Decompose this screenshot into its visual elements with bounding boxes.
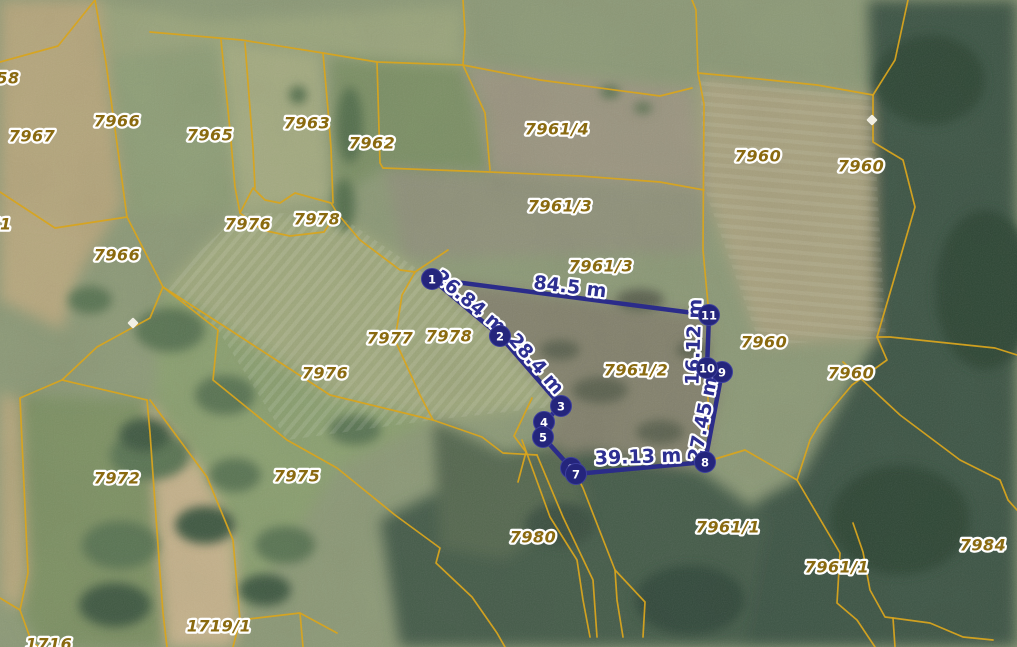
parcel-number-label: 71 — [0, 215, 12, 234]
parcel-number-label: 7961/2 — [604, 361, 669, 380]
parcel-number-label: 7960 — [741, 333, 788, 352]
parcel-number-label: 1716 — [26, 635, 73, 647]
parcel-number-label: 7966 — [94, 112, 141, 131]
parcel-number-label: 7976 — [225, 215, 272, 234]
aerial-cadastral-map: 58796779667965796379627961/4796079607179… — [0, 0, 1017, 647]
parcel-number-label: 7984 — [960, 536, 1007, 555]
measurement-vertex[interactable]: 5 — [533, 427, 554, 448]
measurement-vertex[interactable]: 7 — [566, 464, 587, 485]
parcel-number-label: 7980 — [510, 528, 557, 547]
measurement-vertex[interactable]: 8 — [695, 452, 716, 473]
measurement-distance-label: 39.13 m — [594, 444, 681, 469]
parcel-number-label: 7961/3 — [528, 197, 593, 216]
parcel-number-label: 7960 — [838, 157, 885, 176]
vertex-number: 8 — [701, 456, 709, 470]
parcel-number-label: 7978 — [294, 210, 341, 229]
parcel-number-label: 7963 — [284, 114, 331, 133]
vertex-number: 7 — [572, 468, 580, 482]
parcel-number-label: 7961/4 — [525, 120, 590, 139]
parcel-number-label: 7965 — [187, 126, 234, 145]
map-viewport[interactable]: 58796779667965796379627961/4796079607179… — [0, 0, 1017, 647]
parcel-number-label: 1719/1 — [187, 617, 252, 636]
vertex-number: 9 — [718, 366, 726, 380]
measurement-vertex[interactable]: 1 — [422, 269, 443, 290]
measurement-vertex[interactable]: 3 — [551, 396, 572, 417]
parcel-number-label: 7960 — [828, 364, 875, 383]
vertex-number: 5 — [539, 431, 547, 445]
vertex-number: 2 — [496, 330, 504, 344]
parcel-number-label: 7978 — [426, 327, 473, 346]
vertex-number: 10 — [699, 362, 715, 376]
parcel-number-label: 7976 — [302, 364, 349, 383]
measurement-vertex[interactable]: 10 — [697, 358, 718, 379]
measurement-vertex[interactable]: 2 — [490, 326, 511, 347]
parcel-number-label: 7961/3 — [569, 257, 634, 276]
parcel-number-label: 7961/1 — [805, 558, 870, 577]
parcel-number-label: 7960 — [735, 147, 782, 166]
parcel-number-label: 7977 — [367, 329, 414, 348]
photo-grain — [0, 0, 1017, 647]
parcel-number-label: 7961/1 — [696, 518, 761, 537]
measurement-vertex[interactable]: 11 — [699, 305, 720, 326]
parcel-number-label: 7962 — [349, 134, 396, 153]
parcel-number-label: 7972 — [94, 469, 141, 488]
parcel-number-label: 7967 — [9, 127, 56, 146]
parcel-number-label: 7975 — [274, 467, 321, 486]
parcel-number-label: 58 — [0, 69, 20, 88]
vertex-number: 3 — [557, 400, 565, 414]
vertex-number: 1 — [428, 273, 436, 287]
vertex-number: 11 — [701, 309, 717, 323]
aerial-imagery-layer — [0, 0, 1017, 647]
parcel-number-label: 7966 — [94, 246, 141, 265]
